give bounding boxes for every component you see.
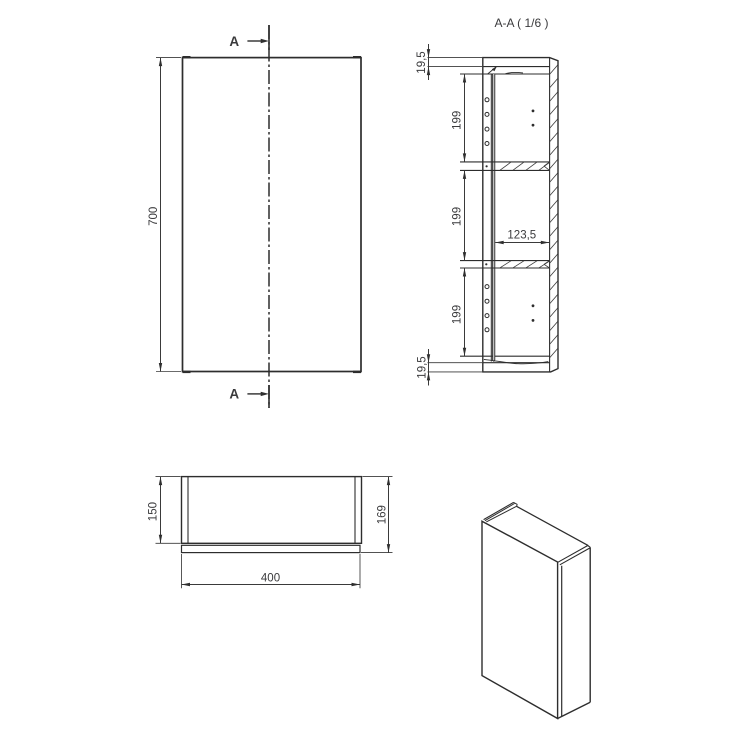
svg-text:400: 400	[261, 573, 280, 585]
svg-text:150: 150	[148, 502, 160, 521]
svg-text:199: 199	[451, 111, 463, 130]
svg-text:199: 199	[451, 305, 463, 324]
svg-text:A: A	[229, 34, 239, 49]
svg-text:19,5: 19,5	[416, 51, 428, 73]
svg-text:123,5: 123,5	[507, 230, 536, 242]
svg-text:169: 169	[376, 505, 388, 524]
svg-text:A-A ( 1/6 ): A-A ( 1/6 )	[494, 16, 548, 30]
svg-text:700: 700	[148, 207, 160, 226]
svg-text:19,5: 19,5	[417, 356, 429, 378]
svg-text:A: A	[229, 387, 239, 402]
svg-text:199: 199	[451, 207, 463, 226]
